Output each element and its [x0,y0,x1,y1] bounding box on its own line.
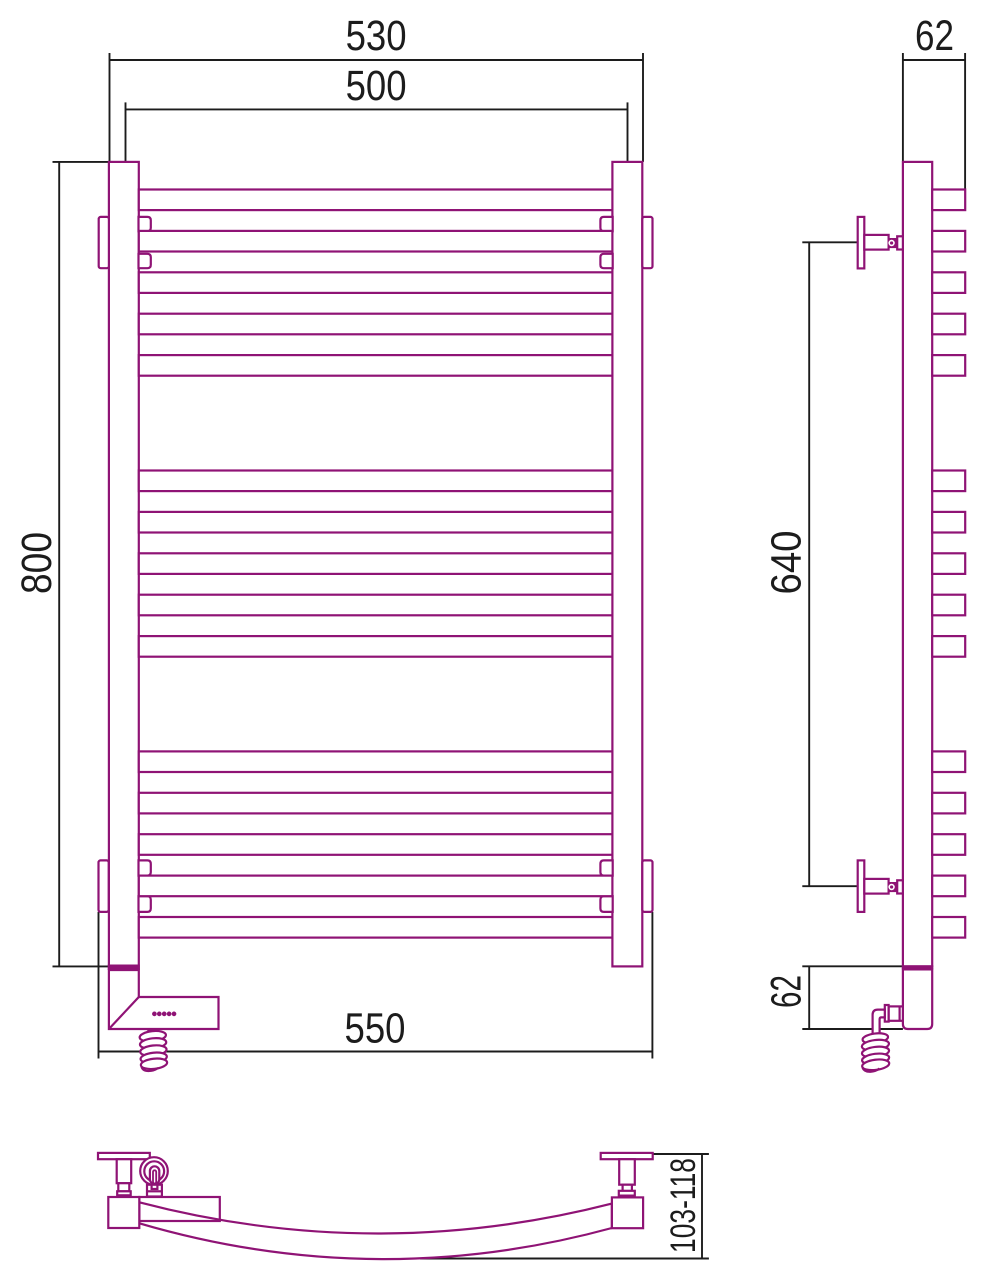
svg-text:550: 550 [345,1006,406,1053]
svg-text:500: 500 [346,63,407,110]
svg-text:530: 530 [346,13,407,60]
svg-text:103-118: 103-118 [663,1158,703,1253]
svg-text:62: 62 [915,13,954,60]
svg-text:62: 62 [764,975,811,1008]
svg-text:640: 640 [764,531,811,595]
svg-text:800: 800 [14,532,61,594]
